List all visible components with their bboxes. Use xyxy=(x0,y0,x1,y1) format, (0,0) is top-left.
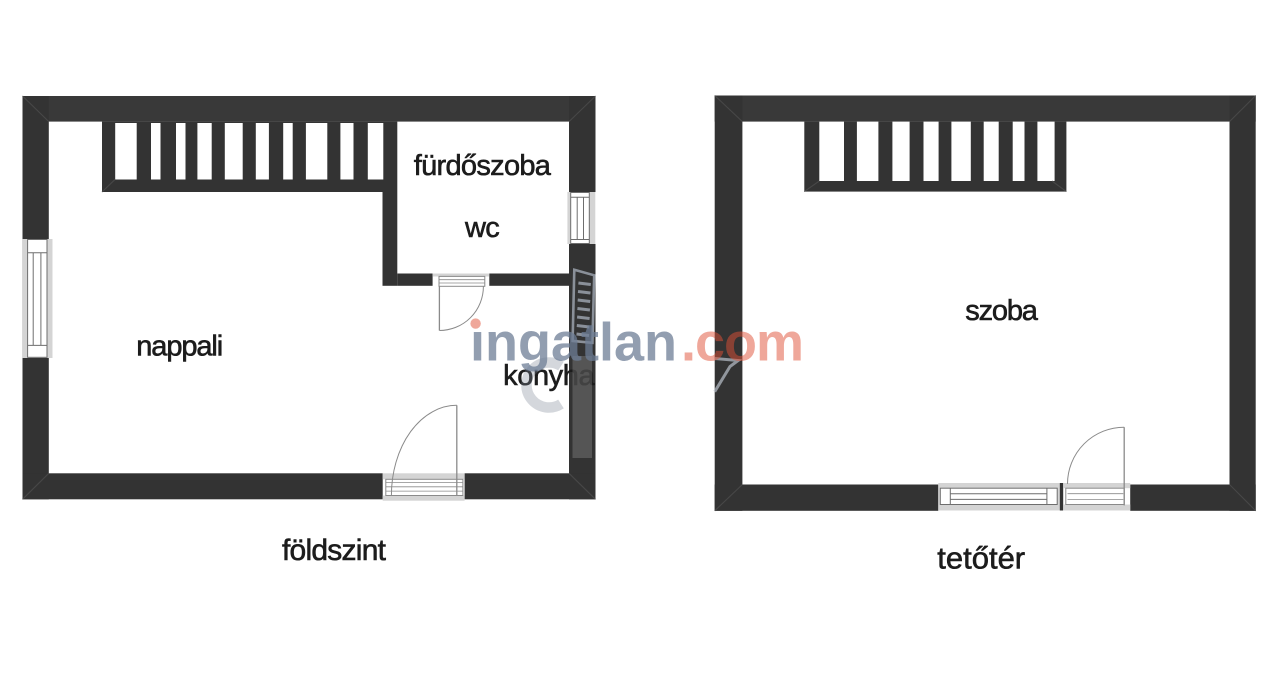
svg-text:wc: wc xyxy=(464,212,499,244)
svg-text:ıngatlan: ıngatlan xyxy=(470,313,677,373)
svg-text:fürdőszoba: fürdőszoba xyxy=(414,150,552,182)
svg-text:tetőtér: tetőtér xyxy=(937,541,1025,576)
svg-text:földszint: földszint xyxy=(282,534,387,567)
svg-text:szoba: szoba xyxy=(965,295,1038,327)
svg-text:.com: .com xyxy=(681,313,803,373)
svg-text:nappali: nappali xyxy=(136,331,222,363)
